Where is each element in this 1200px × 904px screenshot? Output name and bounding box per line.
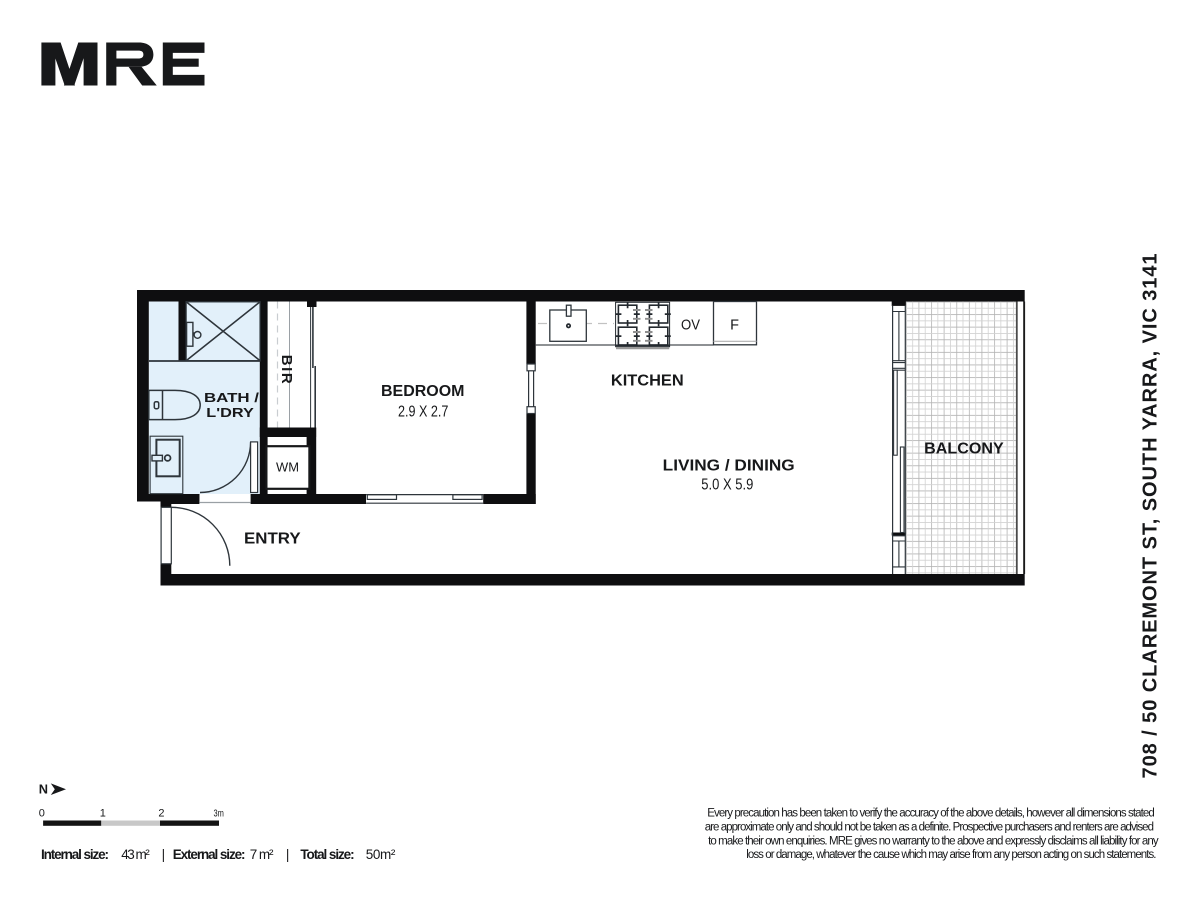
svg-text:BEDROOM: BEDROOM [381, 383, 465, 400]
svg-text:708 / 50 CLAREMONT ST, SOUTH Y: 708 / 50 CLAREMONT ST, SOUTH YARRA, VIC … [1140, 253, 1162, 779]
svg-text:2.9 X 2.7: 2.9 X 2.7 [398, 404, 448, 421]
svg-text:BATH /: BATH / [204, 390, 259, 405]
svg-text:Every precaution has been take: Every precaution has been taken to verif… [707, 808, 1155, 820]
svg-text:LIVING / DINING: LIVING / DINING [663, 458, 795, 475]
svg-text:Internal size:: Internal size: [41, 847, 109, 862]
svg-text:3m: 3m [214, 809, 224, 820]
svg-text:2: 2 [158, 808, 164, 820]
svg-text:BALCONY: BALCONY [924, 441, 1004, 458]
svg-text:loss or damage, whatever the c: loss or damage, whatever the cause which… [746, 849, 1156, 861]
svg-text:1: 1 [100, 808, 106, 820]
svg-text:F: F [730, 318, 739, 334]
svg-text:50m²: 50m² [366, 847, 396, 862]
svg-text:Total size:: Total size: [300, 847, 354, 862]
svg-text:External size:: External size: [173, 847, 246, 862]
svg-text:are approximate only and shoul: are approximate only and should not be t… [705, 822, 1154, 834]
svg-text:to make their own enquiries. M: to make their own enquiries. MRE gives n… [708, 835, 1159, 847]
svg-text:OV: OV [681, 317, 700, 334]
svg-text:|: | [162, 847, 166, 862]
svg-text:BIR: BIR [278, 355, 295, 386]
svg-text:N: N [39, 782, 48, 797]
svg-text:43 m²: 43 m² [121, 847, 150, 862]
svg-text:|: | [286, 847, 290, 862]
svg-text:WM: WM [276, 460, 299, 474]
svg-text:0: 0 [39, 808, 45, 820]
svg-text:5.0 X 5.9: 5.0 X 5.9 [701, 477, 753, 494]
svg-text:7 m²: 7 m² [250, 847, 274, 862]
svg-text:L'DRY: L'DRY [206, 405, 254, 420]
svg-text:ENTRY: ENTRY [244, 531, 301, 548]
svg-text:KITCHEN: KITCHEN [611, 373, 684, 390]
